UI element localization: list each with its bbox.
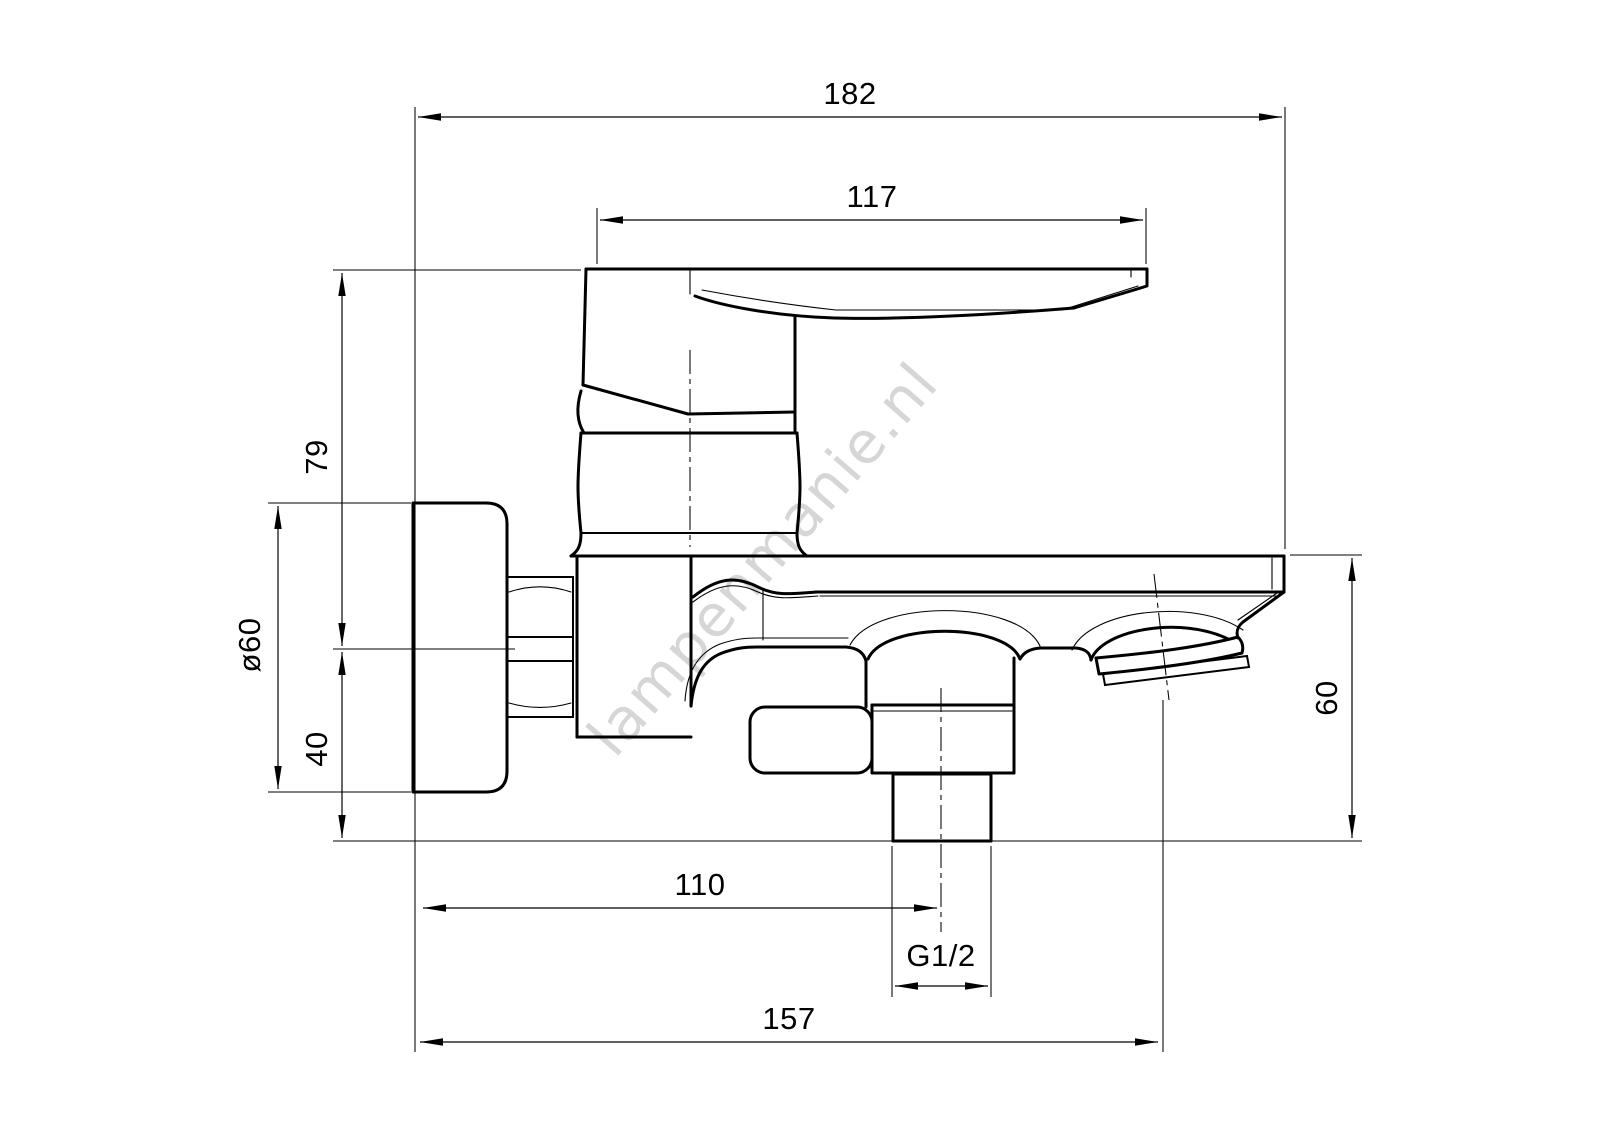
technical-drawing: lampenmanie.nl bbox=[0, 0, 1600, 1131]
dim-label-117: 117 bbox=[847, 179, 898, 214]
dim-label-40: 40 bbox=[299, 731, 334, 766]
dim-label-60: 60 bbox=[1309, 680, 1344, 715]
dim-label-182: 182 bbox=[823, 76, 876, 111]
dim-label-diameter-60: ø60 bbox=[232, 618, 267, 673]
dim-label-157: 157 bbox=[762, 1001, 815, 1036]
dim-label-110: 110 bbox=[675, 867, 726, 902]
dim-label-g12: G1/2 bbox=[906, 938, 975, 973]
dim-label-79: 79 bbox=[299, 439, 334, 474]
drawing-page: lampenmanie.nl bbox=[0, 0, 1600, 1131]
